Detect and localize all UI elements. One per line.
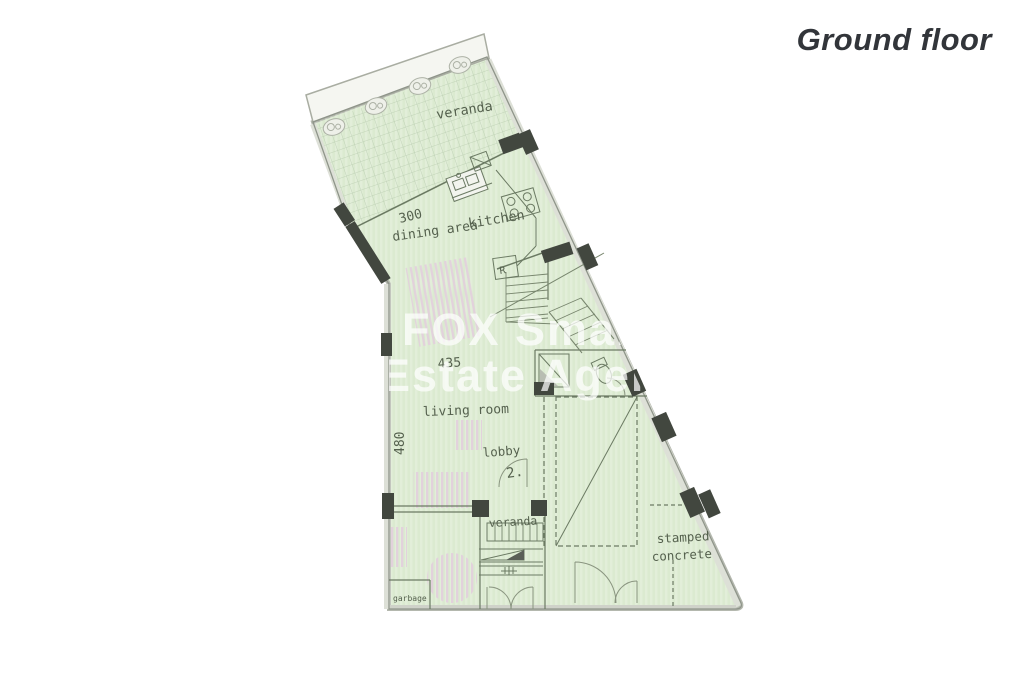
watermark-line2: Estate Agency <box>380 350 714 401</box>
screenshot-root: Ground floor <box>0 0 1024 682</box>
floor-plan-svg: veranda 300 dining area kitchen R 435 li… <box>0 0 1024 682</box>
label-concrete: concrete <box>651 546 712 564</box>
label-living-room: living room <box>423 402 510 420</box>
label-stamped: stamped <box>656 528 709 546</box>
label-garbage: garbage <box>393 594 427 603</box>
watermark: FOX Smart Estate Agency <box>380 304 714 401</box>
label-dim-480: 480 <box>393 432 408 455</box>
label-veranda-lower: veranda <box>488 513 537 530</box>
label-lobby: lobby <box>482 442 521 460</box>
label-lobby-number: 2. <box>505 464 524 482</box>
